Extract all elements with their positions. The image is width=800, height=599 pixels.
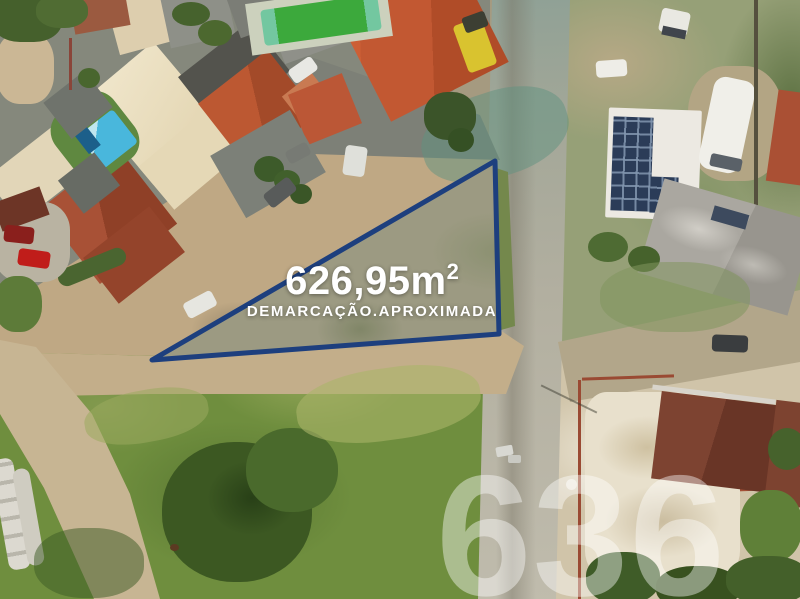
lot-label-group: 626,95m2 DEMARCAÇÃO.APROXIMADA	[172, 260, 572, 320]
superscript-2: 2	[447, 259, 459, 284]
watermark-dot	[566, 479, 577, 490]
agency-watermark-636: 636	[436, 450, 726, 599]
aerial-photo: 626,95m2 DEMARCAÇÃO.APROXIMADA 636	[0, 0, 800, 599]
area-measurement-label: 626,95m2	[172, 260, 572, 302]
demarcation-approx-label: DEMARCAÇÃO.APROXIMADA	[172, 303, 572, 320]
